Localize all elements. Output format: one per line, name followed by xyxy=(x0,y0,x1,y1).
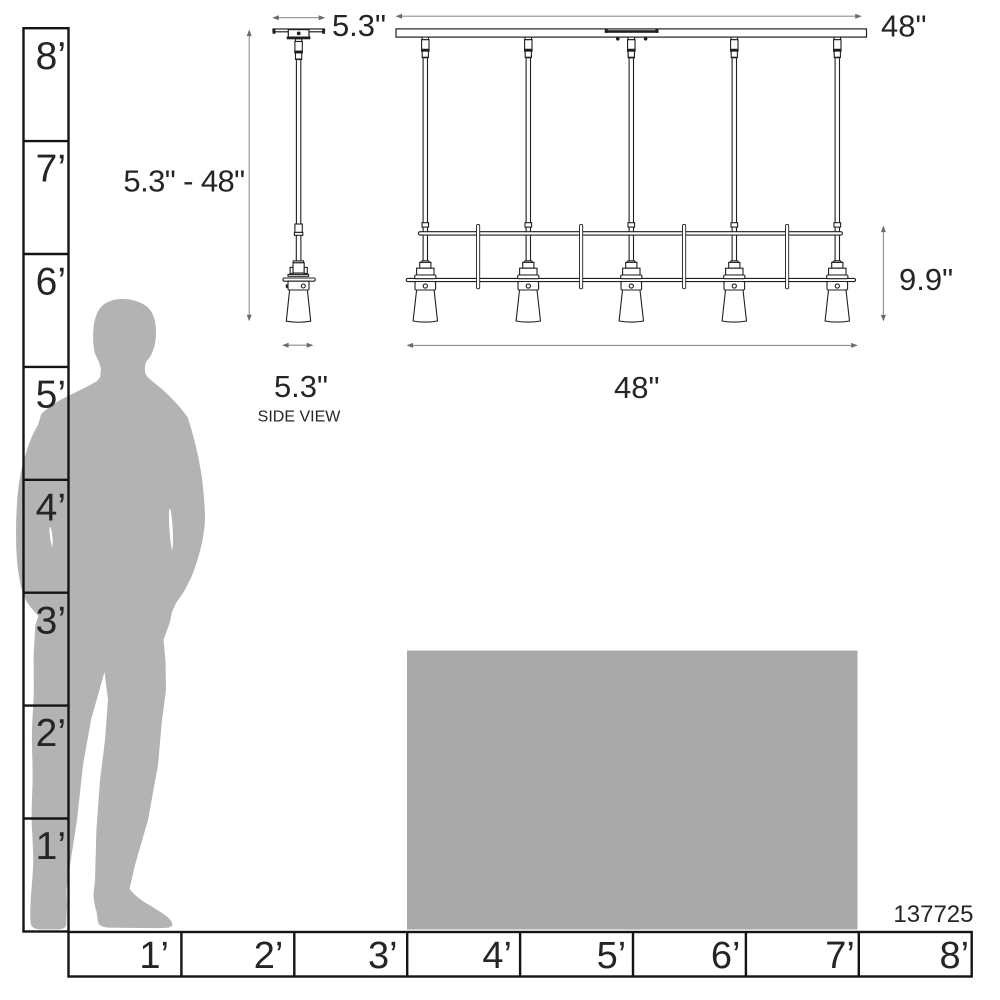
svg-text:7’: 7’ xyxy=(825,935,855,977)
svg-text:4’: 4’ xyxy=(36,486,66,529)
svg-text:8’: 8’ xyxy=(940,935,970,977)
svg-text:3’: 3’ xyxy=(36,599,66,642)
svg-text:8’: 8’ xyxy=(36,35,66,78)
svg-text:4’: 4’ xyxy=(482,935,512,977)
svg-text:1’: 1’ xyxy=(139,935,169,977)
svg-text:SIDE VIEW: SIDE VIEW xyxy=(258,408,342,425)
svg-text:7’: 7’ xyxy=(36,148,66,191)
svg-text:2’: 2’ xyxy=(254,935,284,977)
svg-text:6’: 6’ xyxy=(36,261,66,304)
svg-text:5’: 5’ xyxy=(36,374,66,417)
svg-text:137725: 137725 xyxy=(893,901,973,928)
svg-text:5.3" - 48": 5.3" - 48" xyxy=(123,164,244,199)
svg-text:48": 48" xyxy=(614,370,660,405)
svg-text:5.3": 5.3" xyxy=(274,369,328,404)
svg-text:1’: 1’ xyxy=(36,825,66,868)
svg-text:48": 48" xyxy=(881,9,927,44)
svg-text:3’: 3’ xyxy=(368,935,398,977)
svg-text:5’: 5’ xyxy=(597,935,627,977)
svg-text:6’: 6’ xyxy=(711,935,741,977)
svg-text:2’: 2’ xyxy=(36,712,66,755)
svg-text:5.3": 5.3" xyxy=(332,8,386,43)
svg-text:9.9": 9.9" xyxy=(899,262,953,297)
